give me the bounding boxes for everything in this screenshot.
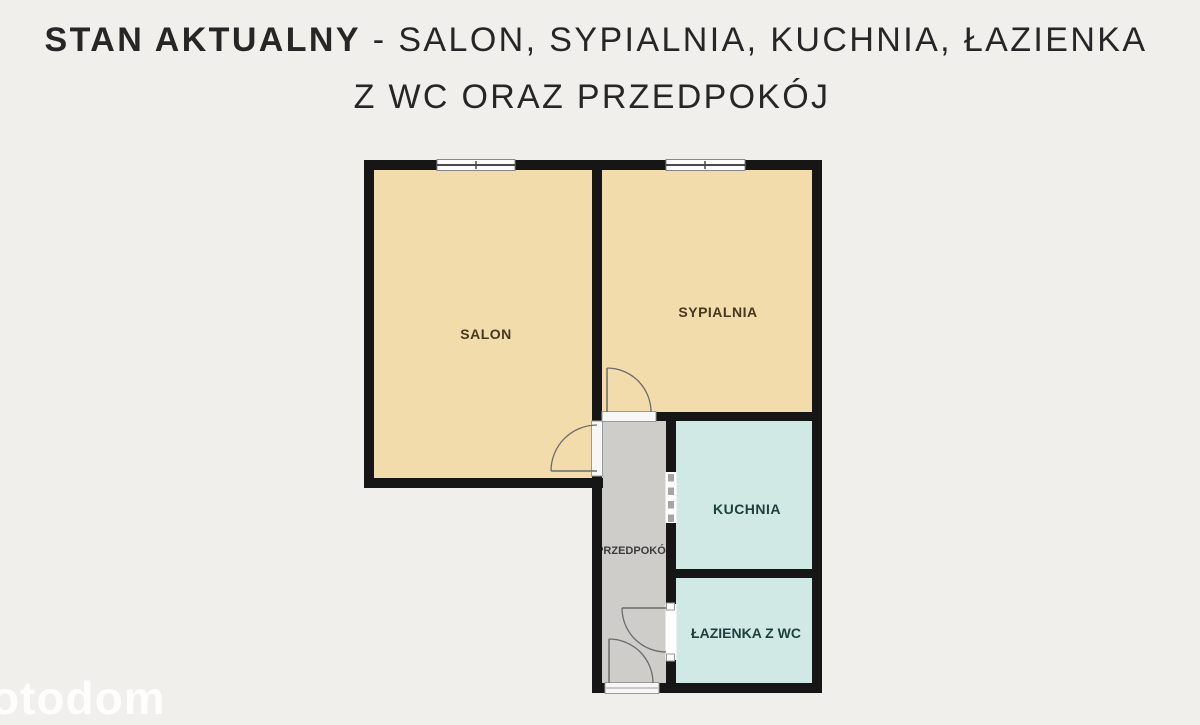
svg-text:PRZEDPOKÓJ: PRZEDPOKÓJ [596, 544, 672, 557]
svg-text:ŁAZIENKA Z WC: ŁAZIENKA Z WC [691, 625, 801, 641]
svg-text:SALON: SALON [460, 326, 512, 342]
svg-text:SYPIALNIA: SYPIALNIA [678, 304, 757, 320]
svg-text:KUCHNIA: KUCHNIA [713, 501, 781, 517]
